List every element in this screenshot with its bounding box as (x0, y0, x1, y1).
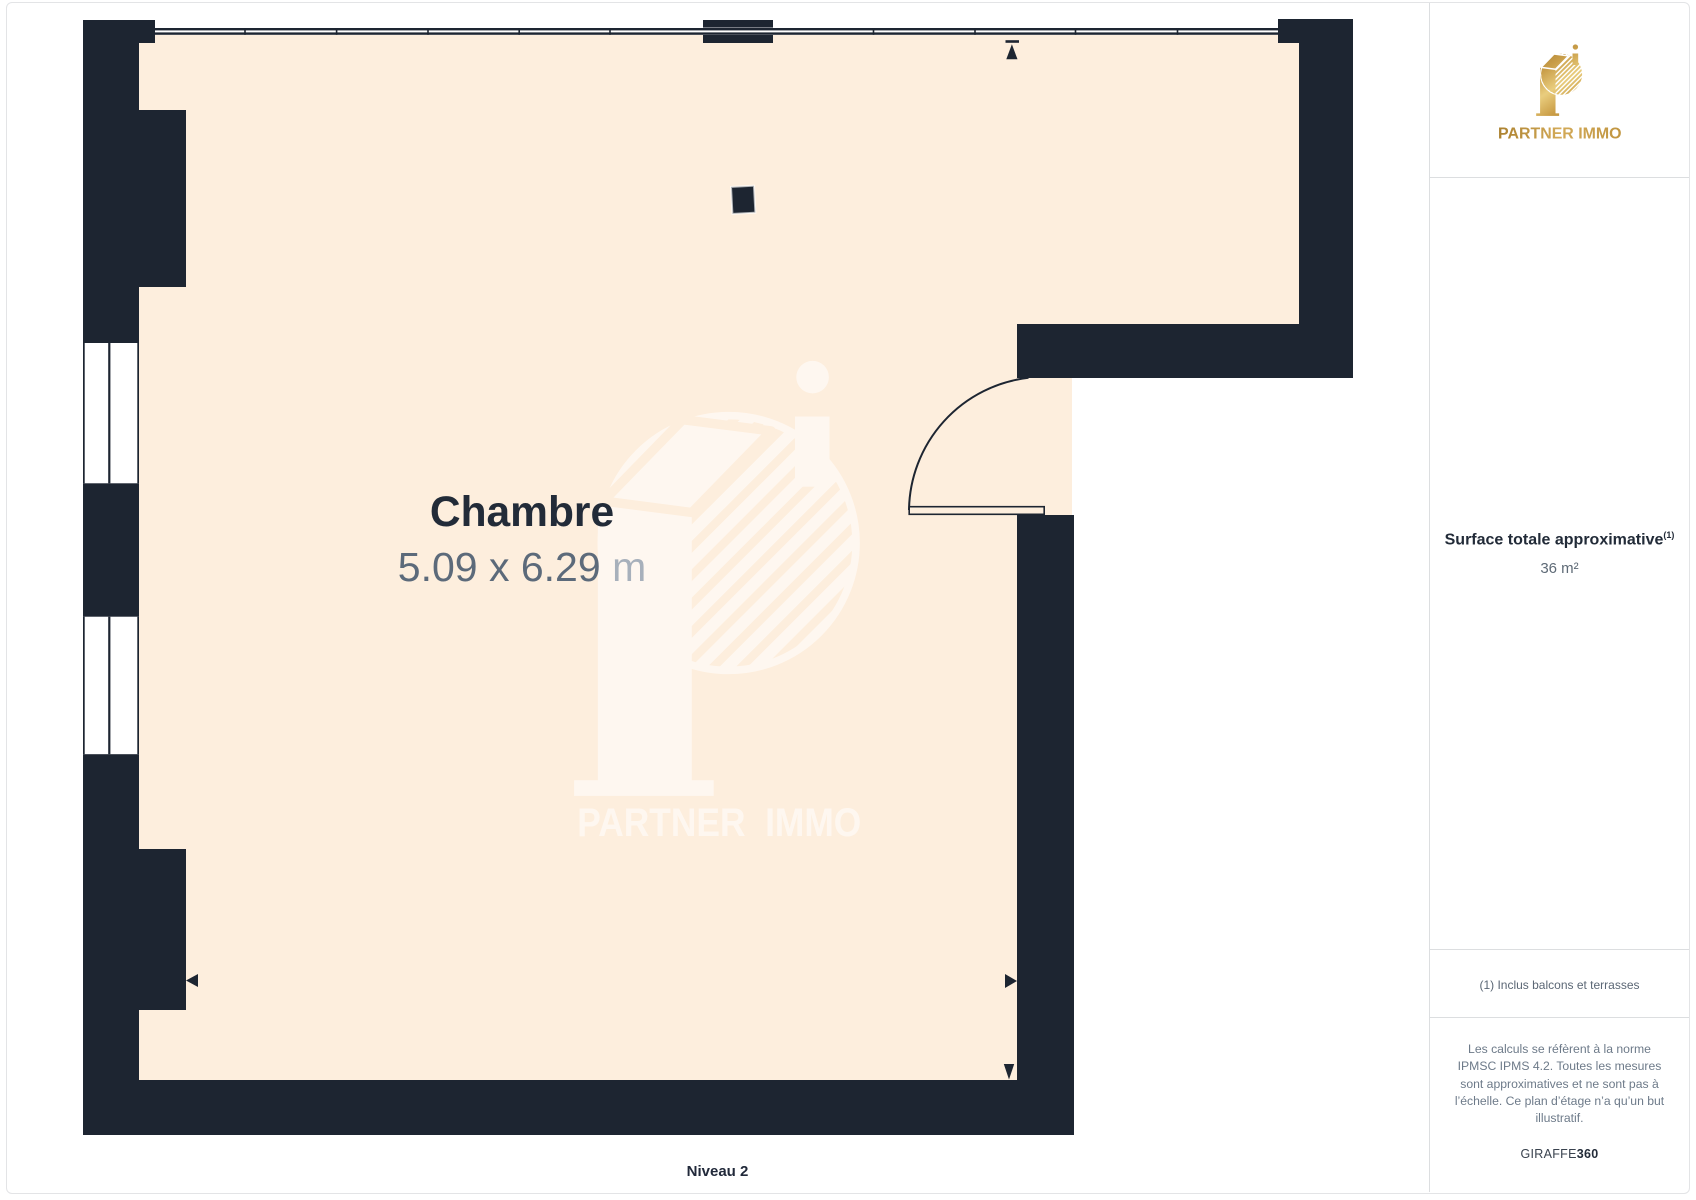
svg-text:Niveau 2: Niveau 2 (687, 1163, 749, 1180)
svg-text:PARTNER IMMO: PARTNER IMMO (577, 801, 861, 845)
svg-text:Chambre: Chambre (430, 489, 614, 536)
svg-text:5.09 x 6.29 m: 5.09 x 6.29 m (398, 544, 646, 590)
svg-text:PARTNER IMMO: PARTNER IMMO (1498, 126, 1622, 143)
